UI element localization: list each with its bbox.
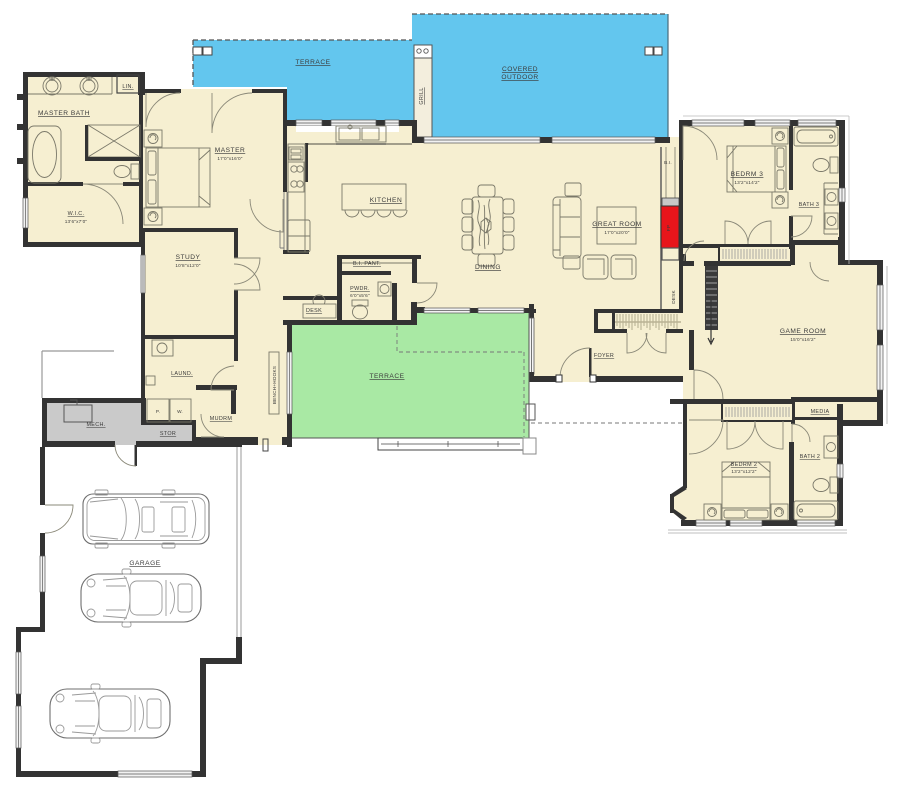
svg-text:B.I.: B.I.: [664, 160, 672, 165]
svg-text:MASTER: MASTER: [215, 147, 245, 154]
svg-text:BEDRM 2: BEDRM 2: [731, 462, 757, 468]
svg-text:GARAGE: GARAGE: [129, 560, 160, 567]
svg-text:17'0"x16'0": 17'0"x16'0": [217, 156, 242, 161]
svg-text:MEDIA: MEDIA: [811, 409, 830, 415]
svg-text:MUDRM: MUDRM: [210, 416, 233, 422]
svg-text:DINING: DINING: [475, 264, 501, 271]
svg-text:MASTER BATH: MASTER BATH: [38, 110, 90, 117]
svg-text:BENCH+HOOKS: BENCH+HOOKS: [272, 366, 277, 404]
svg-text:STUDY: STUDY: [176, 254, 201, 261]
svg-text:STOR: STOR: [160, 431, 176, 437]
svg-text:TERRACE: TERRACE: [369, 373, 404, 380]
svg-text:PWDR.: PWDR.: [350, 286, 370, 292]
svg-text:DESK: DESK: [671, 290, 676, 304]
svg-text:13'6"x7'0": 13'6"x7'0": [65, 219, 88, 224]
svg-text:15'0"x16'2": 15'0"x16'2": [790, 337, 815, 342]
svg-text:GREAT ROOM: GREAT ROOM: [592, 221, 641, 228]
svg-text:TERRACE: TERRACE: [295, 59, 330, 66]
svg-text:W.: W.: [177, 409, 183, 414]
svg-text:6'0"x5'6": 6'0"x5'6": [350, 293, 370, 298]
svg-text:FP: FP: [666, 225, 671, 231]
svg-text:LAUND.: LAUND.: [171, 371, 193, 377]
svg-text:GRILL: GRILL: [419, 87, 425, 104]
svg-text:BATH 2: BATH 2: [800, 454, 821, 460]
svg-text:B.I. PANT.: B.I. PANT.: [353, 261, 381, 267]
svg-text:17'0"x20'0": 17'0"x20'0": [604, 230, 629, 235]
svg-text:13'2"x12'2": 13'2"x12'2": [731, 469, 756, 474]
svg-text:FOYER: FOYER: [594, 353, 614, 359]
svg-text:BATH 3: BATH 3: [799, 202, 820, 208]
svg-text:LIN.: LIN.: [122, 84, 133, 90]
svg-text:P.: P.: [156, 409, 160, 414]
svg-text:W.I.C.: W.I.C.: [68, 211, 85, 217]
svg-text:13'2"x14'2": 13'2"x14'2": [734, 180, 759, 185]
svg-text:OUTDOOR: OUTDOOR: [501, 74, 538, 81]
svg-text:BEDRM 3: BEDRM 3: [731, 171, 764, 178]
svg-text:COVERED: COVERED: [502, 66, 538, 73]
svg-text:DESK: DESK: [306, 308, 322, 314]
svg-text:GAME ROOM: GAME ROOM: [780, 328, 826, 335]
svg-text:10'8"x12'0": 10'8"x12'0": [175, 263, 200, 268]
svg-text:KITCHEN: KITCHEN: [370, 197, 402, 204]
svg-text:MECH.: MECH.: [86, 422, 105, 428]
